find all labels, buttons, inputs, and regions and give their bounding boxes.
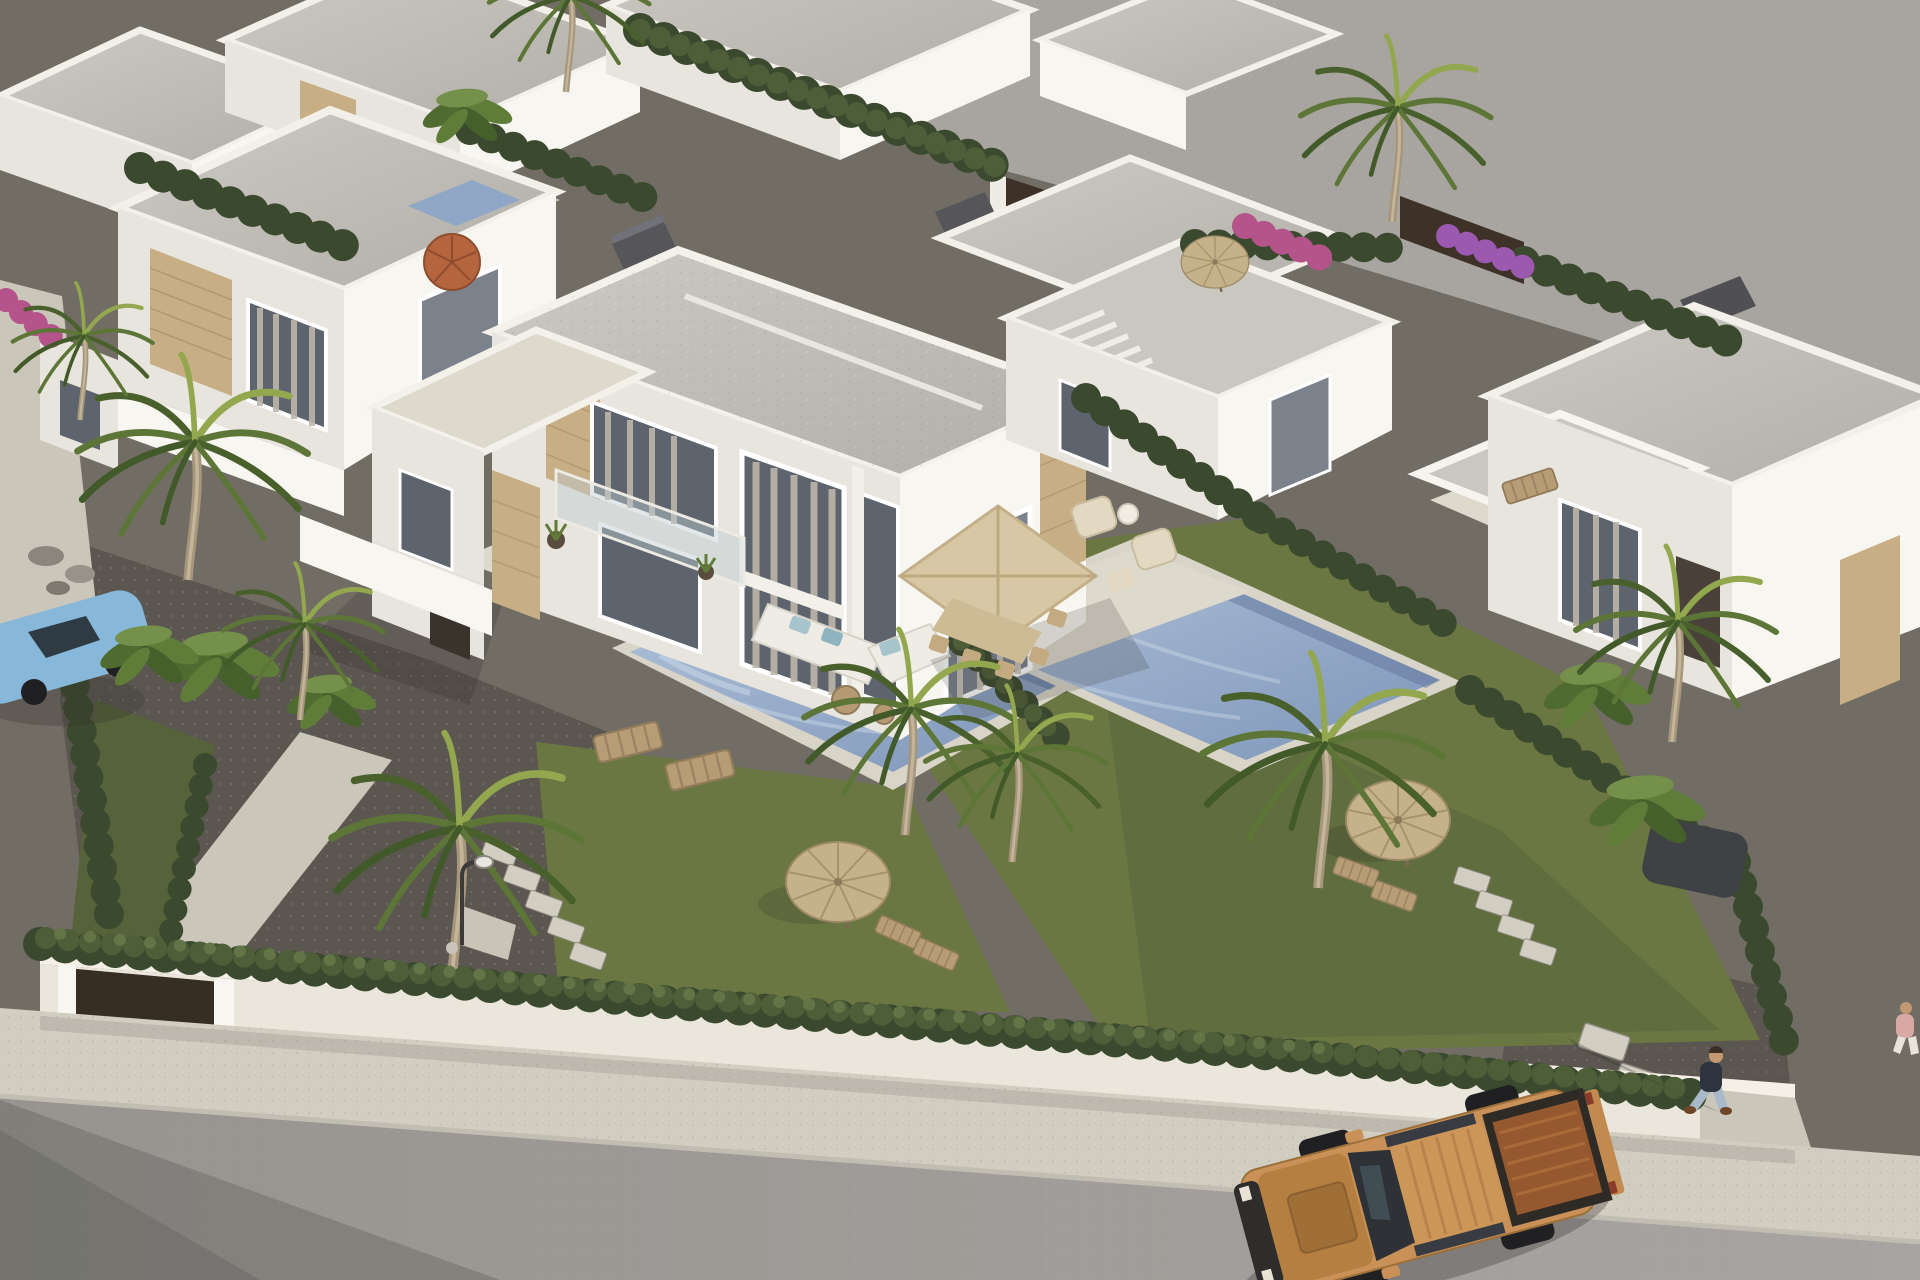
car-wheel-1 bbox=[21, 679, 47, 705]
shoe-right bbox=[1720, 1107, 1732, 1115]
side-table bbox=[1118, 504, 1138, 524]
ground-light bbox=[446, 942, 458, 954]
shoe-left bbox=[1684, 1106, 1696, 1114]
torso-2 bbox=[1896, 1014, 1914, 1038]
render-canvas bbox=[0, 0, 1920, 1280]
stone-strip bbox=[1840, 535, 1900, 705]
torso bbox=[1700, 1062, 1722, 1092]
head-2 bbox=[1900, 1002, 1912, 1014]
lamp-head bbox=[475, 856, 493, 868]
aerial-villa-render bbox=[0, 0, 1920, 1280]
